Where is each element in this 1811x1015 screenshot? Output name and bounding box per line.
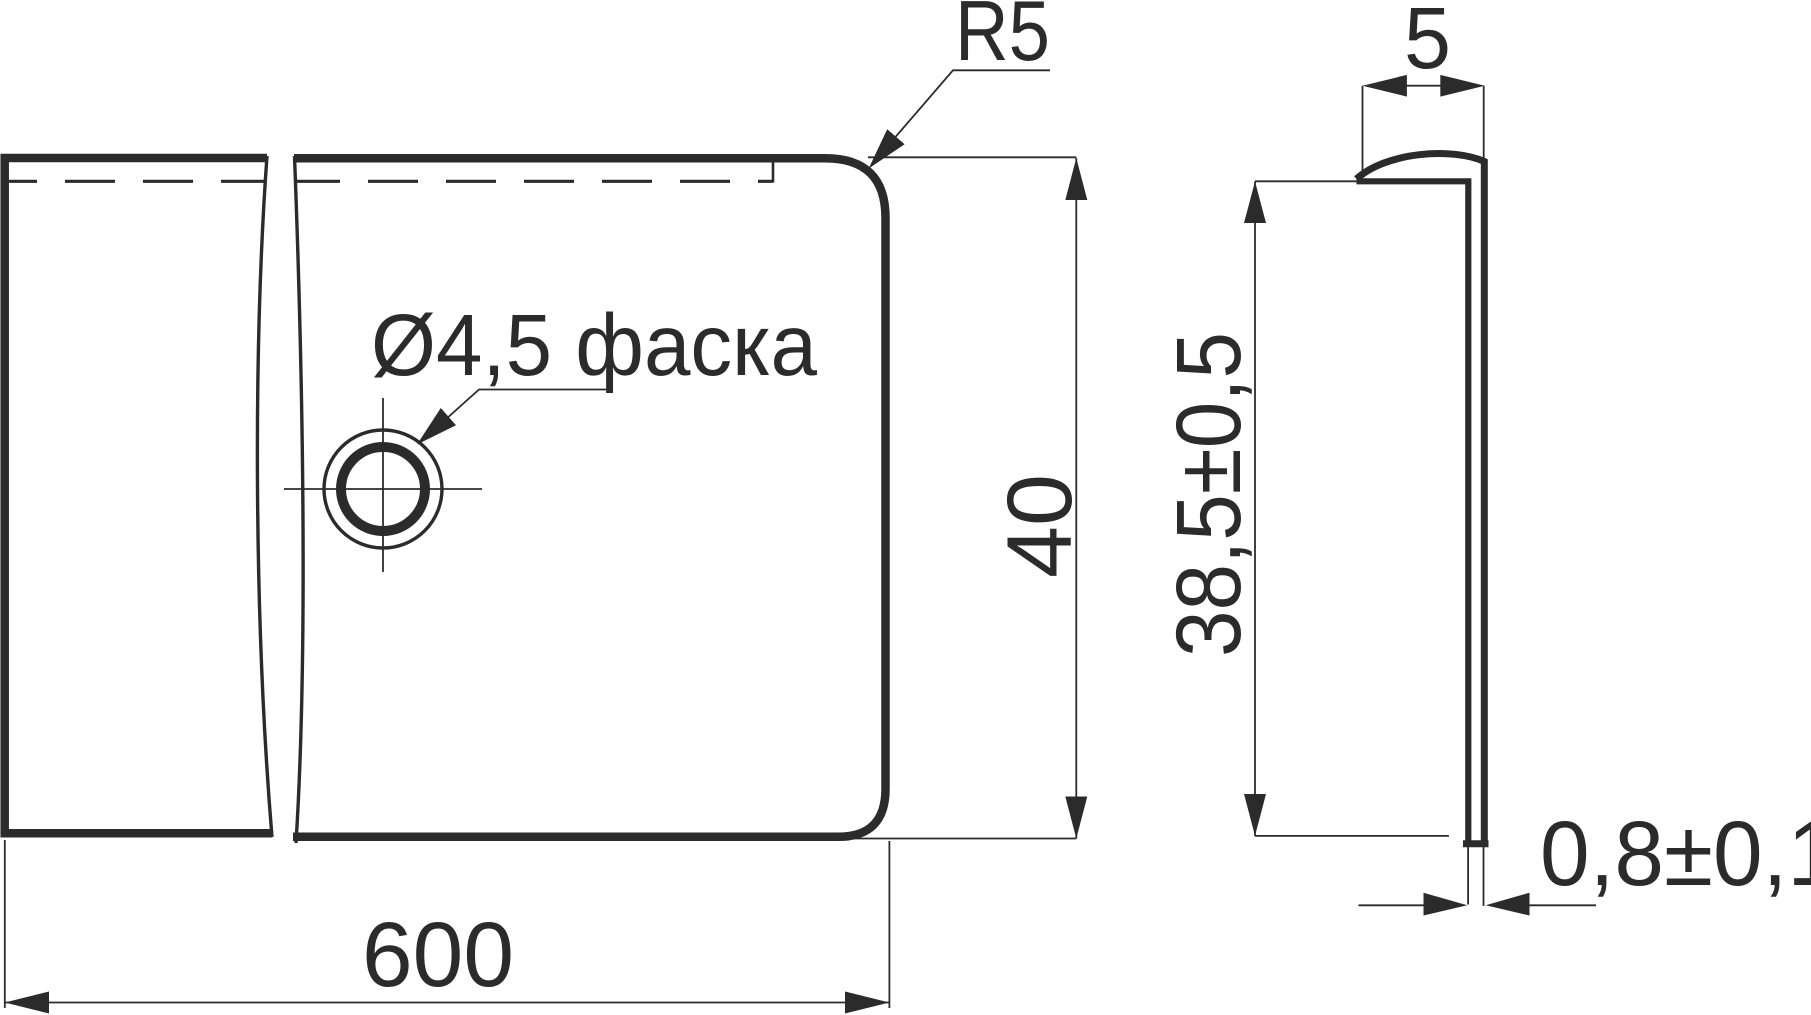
svg-text:40: 40 <box>989 474 1091 578</box>
svg-text:5: 5 <box>1404 0 1451 87</box>
svg-text:R5: R5 <box>955 0 1050 79</box>
svg-text:600: 600 <box>362 904 514 1006</box>
svg-text:0,8±0,1: 0,8±0,1 <box>1540 803 1811 905</box>
svg-text:Ø4,5 фаска: Ø4,5 фаска <box>371 297 818 394</box>
svg-text:38,5±0,5: 38,5±0,5 <box>1158 332 1260 657</box>
